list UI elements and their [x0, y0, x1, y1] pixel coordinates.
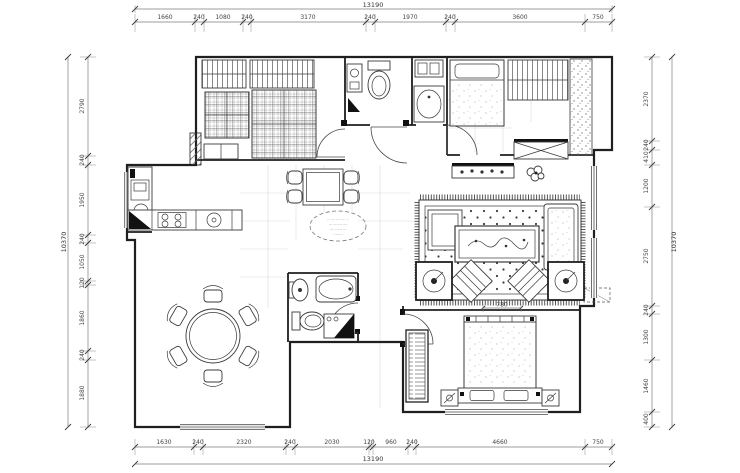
door-jamb: [341, 120, 347, 126]
chair-icon: [203, 370, 223, 387]
dining-table-icon: [287, 169, 360, 205]
dim-left-ticks: [65, 54, 91, 430]
dim-label: 240: [79, 349, 86, 361]
dim-label: 2030: [324, 439, 339, 446]
note-line: ··· ········ ····: [329, 223, 347, 227]
dim-label: 750: [592, 439, 604, 446]
dim-label: 1200: [643, 178, 650, 193]
room-bedroom-topright: [450, 60, 568, 159]
door-arc-bedroom2: [447, 125, 477, 155]
dim-label: 1860: [79, 310, 86, 325]
dim-label: 1080: [215, 14, 230, 21]
dim-label: 1630: [156, 439, 171, 446]
floor-plan-drawing: 13190 1660 240 1080 240 3170 240 1970 24…: [0, 0, 740, 473]
dim-label: 240: [79, 154, 86, 166]
coffee-table-icon: [455, 226, 539, 262]
console-table-icon: [452, 163, 514, 178]
room-living: [416, 197, 584, 303]
window-dining-bottom: [180, 423, 265, 431]
dim-label: 2790: [79, 98, 86, 113]
toilet-icon: [368, 61, 390, 99]
dim-label: 120: [363, 439, 375, 446]
toilet-icon: [292, 312, 324, 330]
dim-label: 750: [592, 14, 604, 21]
note-line: ·· ···· ···· ···· ··: [327, 218, 349, 222]
dim-label: 240: [192, 439, 204, 446]
cabinet-icon: [204, 144, 238, 159]
dim-label: 240: [643, 304, 650, 316]
kitchen-fixture: [130, 169, 135, 178]
shower-corner-icon: [348, 98, 360, 112]
dim-right-total: 10370: [670, 232, 678, 253]
dim-label: 1880: [79, 385, 86, 400]
round-dining-table-icon: [186, 309, 240, 363]
door-arc-hall-bath: [371, 127, 407, 163]
dim-label: 2370: [643, 91, 650, 106]
dim-right-lines: [652, 57, 672, 427]
chair-icon: [237, 302, 261, 328]
dim-bed-clearance: 780: [496, 302, 508, 309]
dim-label: 1460: [643, 378, 650, 393]
washing-machine-icon: [324, 314, 354, 338]
dim-label: 960: [385, 439, 397, 446]
end-table-lamp-icon: [548, 262, 584, 300]
dim-top-total: 13190: [363, 1, 384, 9]
floor-plan-canvas: 13190 1660 240 1080 240 3170 240 1970 24…: [0, 0, 740, 473]
dim-label: 1950: [79, 192, 86, 207]
dim-label: 2320: [236, 439, 251, 446]
tv-cabinet-icon: [514, 139, 568, 159]
plant-icon: [527, 166, 544, 181]
dim-left-total: 10370: [60, 232, 68, 253]
end-table-lamp-icon: [416, 262, 452, 300]
laundry-counter-icon: [347, 64, 362, 92]
room-bath-top2: [414, 60, 444, 122]
window-bedroom-bottom: [445, 408, 548, 416]
bed-double-icon: [252, 90, 316, 158]
room-kitchen: [128, 167, 242, 230]
note-line: ···· ······ ···: [330, 228, 346, 232]
dim-label: 240: [193, 14, 205, 21]
door-arc-bedroom1: [317, 129, 345, 157]
bed-double-icon: [458, 316, 542, 403]
dim-label: 240: [364, 14, 376, 21]
dim-label: 240: [241, 14, 253, 21]
room-dining: [164, 286, 261, 387]
door-jamb: [403, 120, 409, 126]
dim-label: 4660: [492, 439, 507, 446]
dim-label: 2750: [643, 248, 650, 263]
washbasin-icon: [289, 279, 308, 301]
chair-icon: [203, 286, 223, 303]
chair-icon: [164, 344, 188, 370]
bed-single-icon: [205, 92, 249, 138]
dim-label: 1970: [402, 14, 417, 21]
note-ellipse: ·· ···· ···· ···· ·· ··· ········ ···· ·…: [310, 211, 366, 241]
nightstand-icon: [542, 390, 559, 406]
balcony-hatch: [570, 59, 592, 155]
note-line: · ······ ·: [333, 233, 344, 237]
wall-pier-hatch: [190, 133, 201, 165]
dim-label: 240: [284, 439, 296, 446]
dim-label: 410: [643, 151, 650, 163]
dim-label: 400: [643, 413, 650, 425]
nightstand-icon: [441, 390, 458, 406]
bed-icon: [450, 60, 504, 126]
kitchen-counter-bottom: [128, 210, 242, 230]
room-bathroom: [289, 276, 356, 338]
room-bath-top1: [347, 61, 390, 112]
dim-bottom-total: 13190: [363, 455, 384, 463]
room-bedroom-topleft: [202, 60, 316, 159]
cabinet-icon: [415, 60, 443, 77]
dim-label: 3600: [512, 14, 527, 21]
chair-icon: [164, 302, 188, 328]
dim-label: 240: [406, 439, 418, 446]
dim-label: 120: [79, 277, 86, 289]
chair-icon: [237, 344, 261, 370]
radiator-cabinet-icon: [406, 330, 428, 402]
dim-label: 3170: [300, 14, 315, 21]
chaise-icon: [544, 204, 578, 270]
dim-label: 1050: [79, 254, 86, 269]
bed-bench: [458, 388, 542, 403]
dim-label: 240: [643, 139, 650, 151]
dim-label: 240: [444, 14, 456, 21]
washbasin-icon: [414, 86, 444, 122]
dim-label: 1660: [157, 14, 172, 21]
dim-label: 1300: [643, 329, 650, 344]
bathtub-icon: [316, 276, 356, 302]
dim-label: 240: [79, 233, 86, 245]
